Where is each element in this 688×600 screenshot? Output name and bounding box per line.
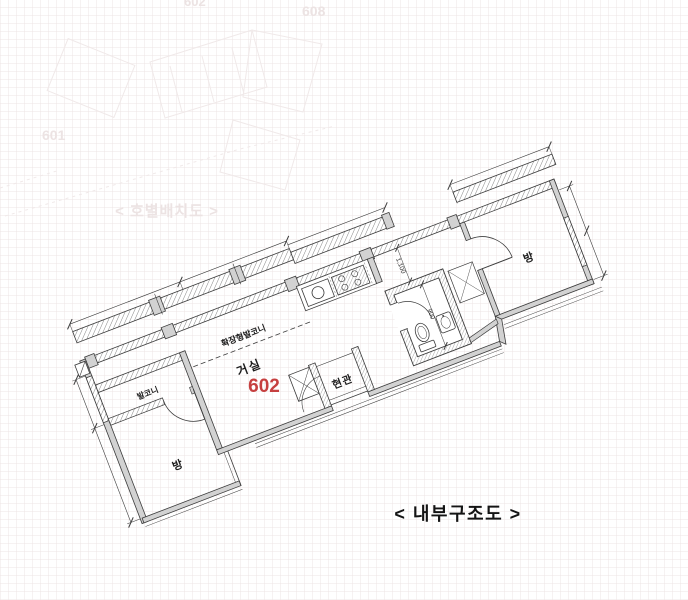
room-label-balcony: 발코니 <box>136 384 160 401</box>
door-arc-bedroom-right <box>471 227 512 268</box>
room-label-bedroom-left: 방 <box>170 457 184 474</box>
bedroom-left <box>106 386 243 527</box>
dimension-line-left-side <box>71 372 142 527</box>
room-label-entrance: 현관 <box>330 372 355 392</box>
ghost-unit-608: 608 <box>302 3 326 19</box>
unit-number-label: 602 <box>248 376 280 397</box>
page-caption: < 내부구조도 > <box>394 504 521 524</box>
room-label-bedroom-right: 방 <box>521 249 535 266</box>
dimension-text-hall: 1,100 <box>394 257 407 275</box>
ghost-unit-602: 602 <box>184 0 206 9</box>
floorplan-page: 601 602 608 < 호별배치도 > <box>0 0 688 600</box>
ghost-caption: < 호별배치도 > <box>115 202 219 220</box>
floor-plan: 확장형발코니 거실 방 방 발코니 현관 1,100 900 <box>52 134 633 532</box>
room-label-extended-balcony: 확장형발코니 <box>220 323 267 349</box>
corridor-band-right <box>445 142 560 205</box>
floorplan-canvas: 601 602 608 < 호별배치도 > <box>0 0 688 600</box>
ghost-layout-diagram <box>0 30 335 216</box>
ghost-unit-601: 601 <box>42 127 66 143</box>
